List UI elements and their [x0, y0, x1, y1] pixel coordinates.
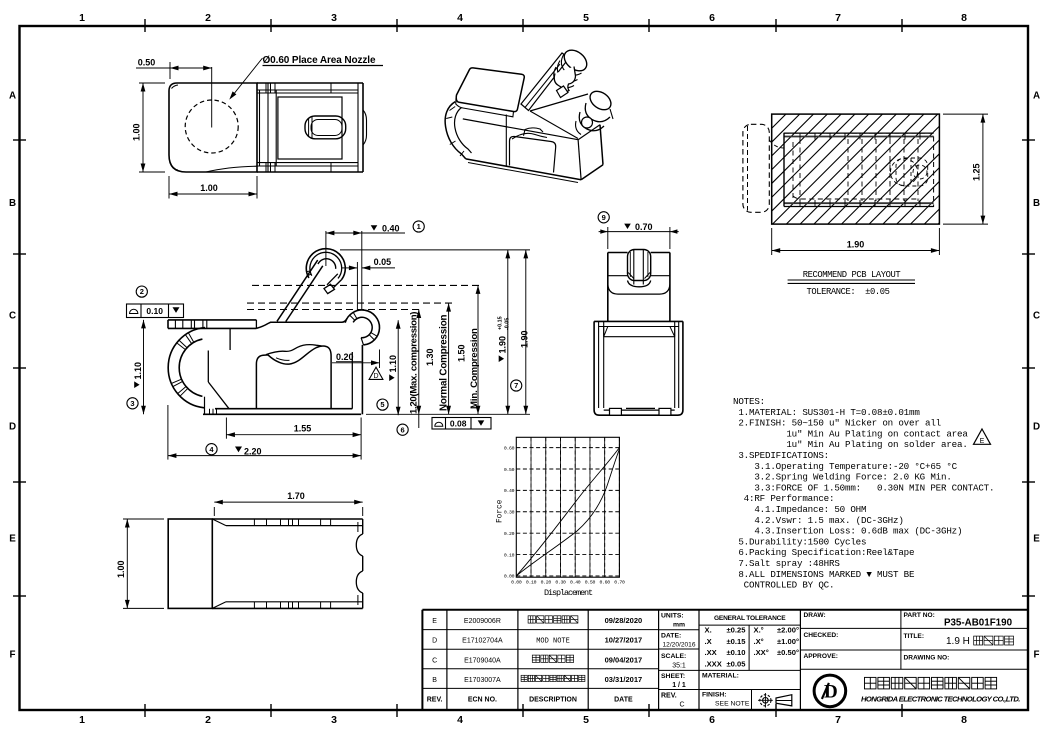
- svg-text:REV.: REV.: [427, 697, 443, 704]
- svg-text:UNITS:: UNITS:: [661, 613, 684, 620]
- svg-text:A: A: [9, 90, 16, 101]
- svg-text:.XX: .XX: [705, 648, 717, 657]
- svg-text:0.50: 0.50: [504, 467, 515, 473]
- svg-text:0.20: 0.20: [336, 352, 354, 362]
- svg-text:D: D: [432, 638, 437, 645]
- svg-text:B: B: [1033, 198, 1040, 209]
- svg-text:P35-AB01F190: P35-AB01F190: [944, 618, 1013, 629]
- svg-text:SCALE:: SCALE:: [661, 653, 686, 660]
- svg-text:03/31/2017: 03/31/2017: [605, 675, 643, 684]
- svg-text:1.55: 1.55: [294, 424, 312, 434]
- svg-text:3.SPEDIFICATIONS:: 3.SPEDIFICATIONS:: [733, 450, 829, 461]
- svg-text:.X°: .X°: [754, 637, 764, 646]
- svg-text:3: 3: [331, 12, 337, 24]
- svg-text:TOLERANCE: ±0.05: TOLERANCE: ±0.05: [807, 287, 890, 297]
- svg-text:B: B: [432, 677, 437, 684]
- svg-text:09/04/2017: 09/04/2017: [605, 655, 643, 664]
- svg-text:3.2.Spring Welding Force: 2.0: 3.2.Spring Welding Force: 2.0 KG Min.: [733, 472, 952, 483]
- svg-text:6: 6: [709, 12, 715, 24]
- svg-text:1.10: 1.10: [388, 355, 398, 373]
- svg-text:0.10: 0.10: [504, 552, 515, 558]
- svg-text:4: 4: [457, 12, 463, 24]
- svg-text:2.20: 2.20: [244, 446, 262, 456]
- svg-text:±0.15: ±0.15: [727, 637, 747, 646]
- svg-text:3: 3: [331, 714, 337, 726]
- svg-text:SEE NOTE: SEE NOTE: [715, 701, 750, 708]
- svg-text:X.°: X.°: [754, 626, 764, 635]
- svg-text:B: B: [9, 198, 16, 209]
- svg-text:MOD NOTE: MOD NOTE: [536, 638, 570, 646]
- svg-text:E: E: [9, 534, 16, 545]
- svg-text:1.50: 1.50: [456, 344, 466, 362]
- svg-text:09/28/2020: 09/28/2020: [605, 616, 643, 625]
- svg-text:1.10: 1.10: [133, 362, 143, 380]
- svg-text:35:1: 35:1: [672, 663, 686, 670]
- svg-text:X.: X.: [705, 626, 712, 635]
- svg-text:GENERAL TOLERANCE: GENERAL TOLERANCE: [714, 615, 786, 622]
- svg-text:0.40: 0.40: [382, 223, 400, 233]
- svg-text:DRAW:: DRAW:: [804, 612, 826, 619]
- svg-text:E1709040A: E1709040A: [464, 657, 501, 664]
- svg-text:F: F: [10, 650, 16, 661]
- svg-text:10/27/2017: 10/27/2017: [605, 636, 643, 645]
- svg-text:FINISH:: FINISH:: [702, 692, 727, 699]
- svg-text:E2009006R: E2009006R: [464, 618, 501, 625]
- svg-text:4.1.Impedance: 50 OHM: 4.1.Impedance: 50 OHM: [733, 504, 866, 515]
- svg-text:1.00: 1.00: [132, 123, 142, 141]
- svg-text:E: E: [432, 618, 437, 625]
- svg-text:Normal Compression: Normal Compression: [439, 314, 450, 411]
- svg-text:1.90: 1.90: [520, 330, 530, 348]
- svg-text:D: D: [9, 422, 16, 433]
- svg-text:E1703007A: E1703007A: [464, 677, 501, 684]
- svg-text:Force: Force: [497, 499, 505, 523]
- svg-text:±0.50°: ±0.50°: [777, 648, 799, 657]
- svg-text:7: 7: [514, 381, 518, 390]
- svg-text:2: 2: [205, 714, 211, 726]
- svg-text:1: 1: [79, 714, 85, 726]
- svg-text:±0.25: ±0.25: [727, 626, 747, 635]
- svg-text:1 / 1: 1 / 1: [672, 682, 686, 689]
- svg-text:D: D: [1033, 422, 1040, 433]
- svg-text:3.3:FORCE OF 1.50mm: 0.30N M: 3.3:FORCE OF 1.50mm: 0.30N MIN PER CONTA…: [733, 482, 994, 493]
- svg-text:0.60: 0.60: [504, 445, 515, 451]
- svg-text:C: C: [432, 657, 437, 664]
- svg-text:TITLE:: TITLE:: [904, 633, 925, 640]
- svg-text:DATE: DATE: [614, 697, 633, 704]
- svg-text:A: A: [1033, 90, 1040, 101]
- svg-text:0.70: 0.70: [635, 222, 653, 232]
- svg-text:D: D: [373, 373, 378, 380]
- svg-text:1.20(Max. compression): 1.20(Max. compression): [409, 312, 420, 414]
- svg-text:9: 9: [602, 213, 606, 222]
- svg-text:4: 4: [457, 714, 463, 726]
- svg-text:4.3.Insertion Loss: 0.6dB max: 4.3.Insertion Loss: 0.6dB max (DC-3GHz): [733, 526, 962, 537]
- svg-text:0.08: 0.08: [450, 418, 467, 428]
- svg-text:DRAWING NO:: DRAWING NO:: [904, 655, 950, 662]
- svg-text:DATE:: DATE:: [661, 633, 681, 640]
- svg-text:E17102704A: E17102704A: [462, 638, 503, 645]
- svg-text:1.25: 1.25: [971, 163, 981, 181]
- svg-text:PART NO:: PART NO:: [904, 612, 935, 619]
- svg-text:4.2.Vswr: 1.5 max. (DC-3GHz): 4.2.Vswr: 1.5 max. (DC-3GHz): [733, 515, 904, 526]
- svg-text:MATERIAL:: MATERIAL:: [702, 673, 739, 680]
- svg-text:7.Salt spray :48HRS: 7.Salt spray :48HRS: [733, 558, 840, 569]
- svg-text:1: 1: [417, 222, 421, 231]
- svg-text:±0.10: ±0.10: [727, 648, 746, 657]
- svg-text:1.00: 1.00: [116, 560, 126, 578]
- svg-text:Min. Compression: Min. Compression: [469, 328, 480, 409]
- svg-text:±0.05: ±0.05: [727, 660, 747, 669]
- svg-text:0.20: 0.20: [504, 531, 515, 537]
- svg-text:8: 8: [961, 12, 967, 24]
- svg-text:7: 7: [835, 714, 841, 726]
- svg-text:SHEET:: SHEET:: [661, 673, 685, 680]
- svg-text:5: 5: [380, 400, 384, 409]
- svg-text:0.70: 0.70: [614, 580, 625, 586]
- svg-text:C: C: [9, 310, 16, 321]
- svg-text:CONTROLLED BY QC.: CONTROLLED BY QC.: [733, 580, 834, 591]
- svg-text:NOTES:: NOTES:: [733, 396, 765, 407]
- svg-text:1.9 H: 1.9 H: [946, 636, 973, 647]
- svg-text:-0.05: -0.05: [504, 318, 510, 330]
- svg-text:1u" Min Au Plating on contact: 1u" Min Au Plating on contact area: [733, 428, 968, 439]
- svg-text:1.70: 1.70: [287, 491, 305, 501]
- svg-text:0.50: 0.50: [585, 580, 596, 586]
- svg-text:2: 2: [140, 287, 144, 296]
- svg-text:0.30: 0.30: [504, 510, 515, 516]
- svg-text:RECOMMEND PCB LAYOUT: RECOMMEND PCB LAYOUT: [803, 270, 901, 280]
- svg-text:8: 8: [961, 714, 967, 726]
- svg-text:0.00: 0.00: [504, 574, 515, 580]
- svg-text:F: F: [1034, 650, 1040, 661]
- svg-text:1.90: 1.90: [498, 336, 508, 354]
- svg-text:C: C: [679, 702, 684, 709]
- svg-text:6: 6: [401, 425, 405, 434]
- svg-text:5: 5: [583, 714, 589, 726]
- svg-text:8.ALL DIMENSIONS MARKED ▼ MUST: 8.ALL DIMENSIONS MARKED ▼ MUST BE: [733, 569, 915, 580]
- svg-text:Ø0.60 Place Area Nozzle: Ø0.60 Place Area Nozzle: [263, 55, 376, 66]
- svg-text:E: E: [980, 438, 985, 445]
- svg-text:+0.15: +0.15: [498, 316, 504, 330]
- svg-text:0.50: 0.50: [138, 58, 156, 68]
- svg-text:0.30: 0.30: [555, 580, 566, 586]
- svg-text:5: 5: [583, 12, 589, 24]
- svg-text:.X: .X: [705, 637, 712, 646]
- svg-text:±1.00°: ±1.00°: [777, 637, 799, 646]
- svg-text:0.10: 0.10: [146, 306, 163, 316]
- svg-text:7: 7: [835, 12, 841, 24]
- svg-text:6.Packing Specification:Reel&T: 6.Packing Specification:Reel&Tape: [733, 547, 914, 558]
- svg-text:0.60: 0.60: [600, 580, 611, 586]
- svg-text:APPROVE:: APPROVE:: [804, 653, 838, 660]
- svg-text:6: 6: [709, 714, 715, 726]
- svg-text:C: C: [1033, 310, 1040, 321]
- svg-text:3.1.Operating Temperature:-20: 3.1.Operating Temperature:-20 °C+65 °C: [733, 461, 958, 472]
- svg-text:5.Durability:1500 Cycles: 5.Durability:1500 Cycles: [733, 536, 866, 547]
- svg-text:4:RF Performance:: 4:RF Performance:: [733, 493, 834, 504]
- svg-text:REV.: REV.: [661, 693, 677, 700]
- svg-text:DESCRIPTION: DESCRIPTION: [529, 697, 577, 704]
- svg-text:.XXX: .XXX: [705, 660, 722, 669]
- svg-text:3: 3: [130, 399, 134, 408]
- svg-text:1: 1: [79, 12, 85, 24]
- svg-text:2: 2: [205, 12, 211, 24]
- svg-text:1.90: 1.90: [847, 240, 865, 250]
- svg-text:0.05: 0.05: [374, 257, 392, 267]
- svg-text:0.40: 0.40: [570, 580, 581, 586]
- svg-text:0.20: 0.20: [541, 580, 552, 586]
- svg-text:CHECKED:: CHECKED:: [804, 632, 839, 639]
- svg-text:E: E: [1033, 534, 1040, 545]
- svg-text:0.40: 0.40: [504, 488, 515, 494]
- svg-text:mm: mm: [673, 622, 685, 629]
- svg-text:±2.00°: ±2.00°: [777, 626, 799, 635]
- svg-text:1u" Min Au Plating on solder a: 1u" Min Au Plating on solder area.: [733, 439, 968, 450]
- svg-text:12/20/2016: 12/20/2016: [662, 641, 695, 648]
- svg-text:Displacement: Displacement: [544, 588, 593, 598]
- svg-text:1.MATERIAL: SUS301-H T=0.08±0.: 1.MATERIAL: SUS301-H T=0.08±0.01mm: [733, 407, 920, 418]
- svg-text:ECN NO.: ECN NO.: [468, 697, 497, 704]
- svg-text:HONGRIDA ELECTRONIC TECHNOLOGY: HONGRIDA ELECTRONIC TECHNOLOGY CO.,LTD.: [861, 695, 1020, 704]
- svg-text:2.FINISH: 50~150 u" Nicker on: 2.FINISH: 50~150 u" Nicker on over all: [733, 418, 941, 429]
- svg-text:0.00: 0.00: [511, 580, 522, 586]
- svg-text:0.10: 0.10: [526, 580, 537, 586]
- svg-text:1.00: 1.00: [200, 183, 218, 193]
- svg-text:1.30: 1.30: [425, 348, 435, 366]
- svg-text:.XX°: .XX°: [754, 648, 769, 657]
